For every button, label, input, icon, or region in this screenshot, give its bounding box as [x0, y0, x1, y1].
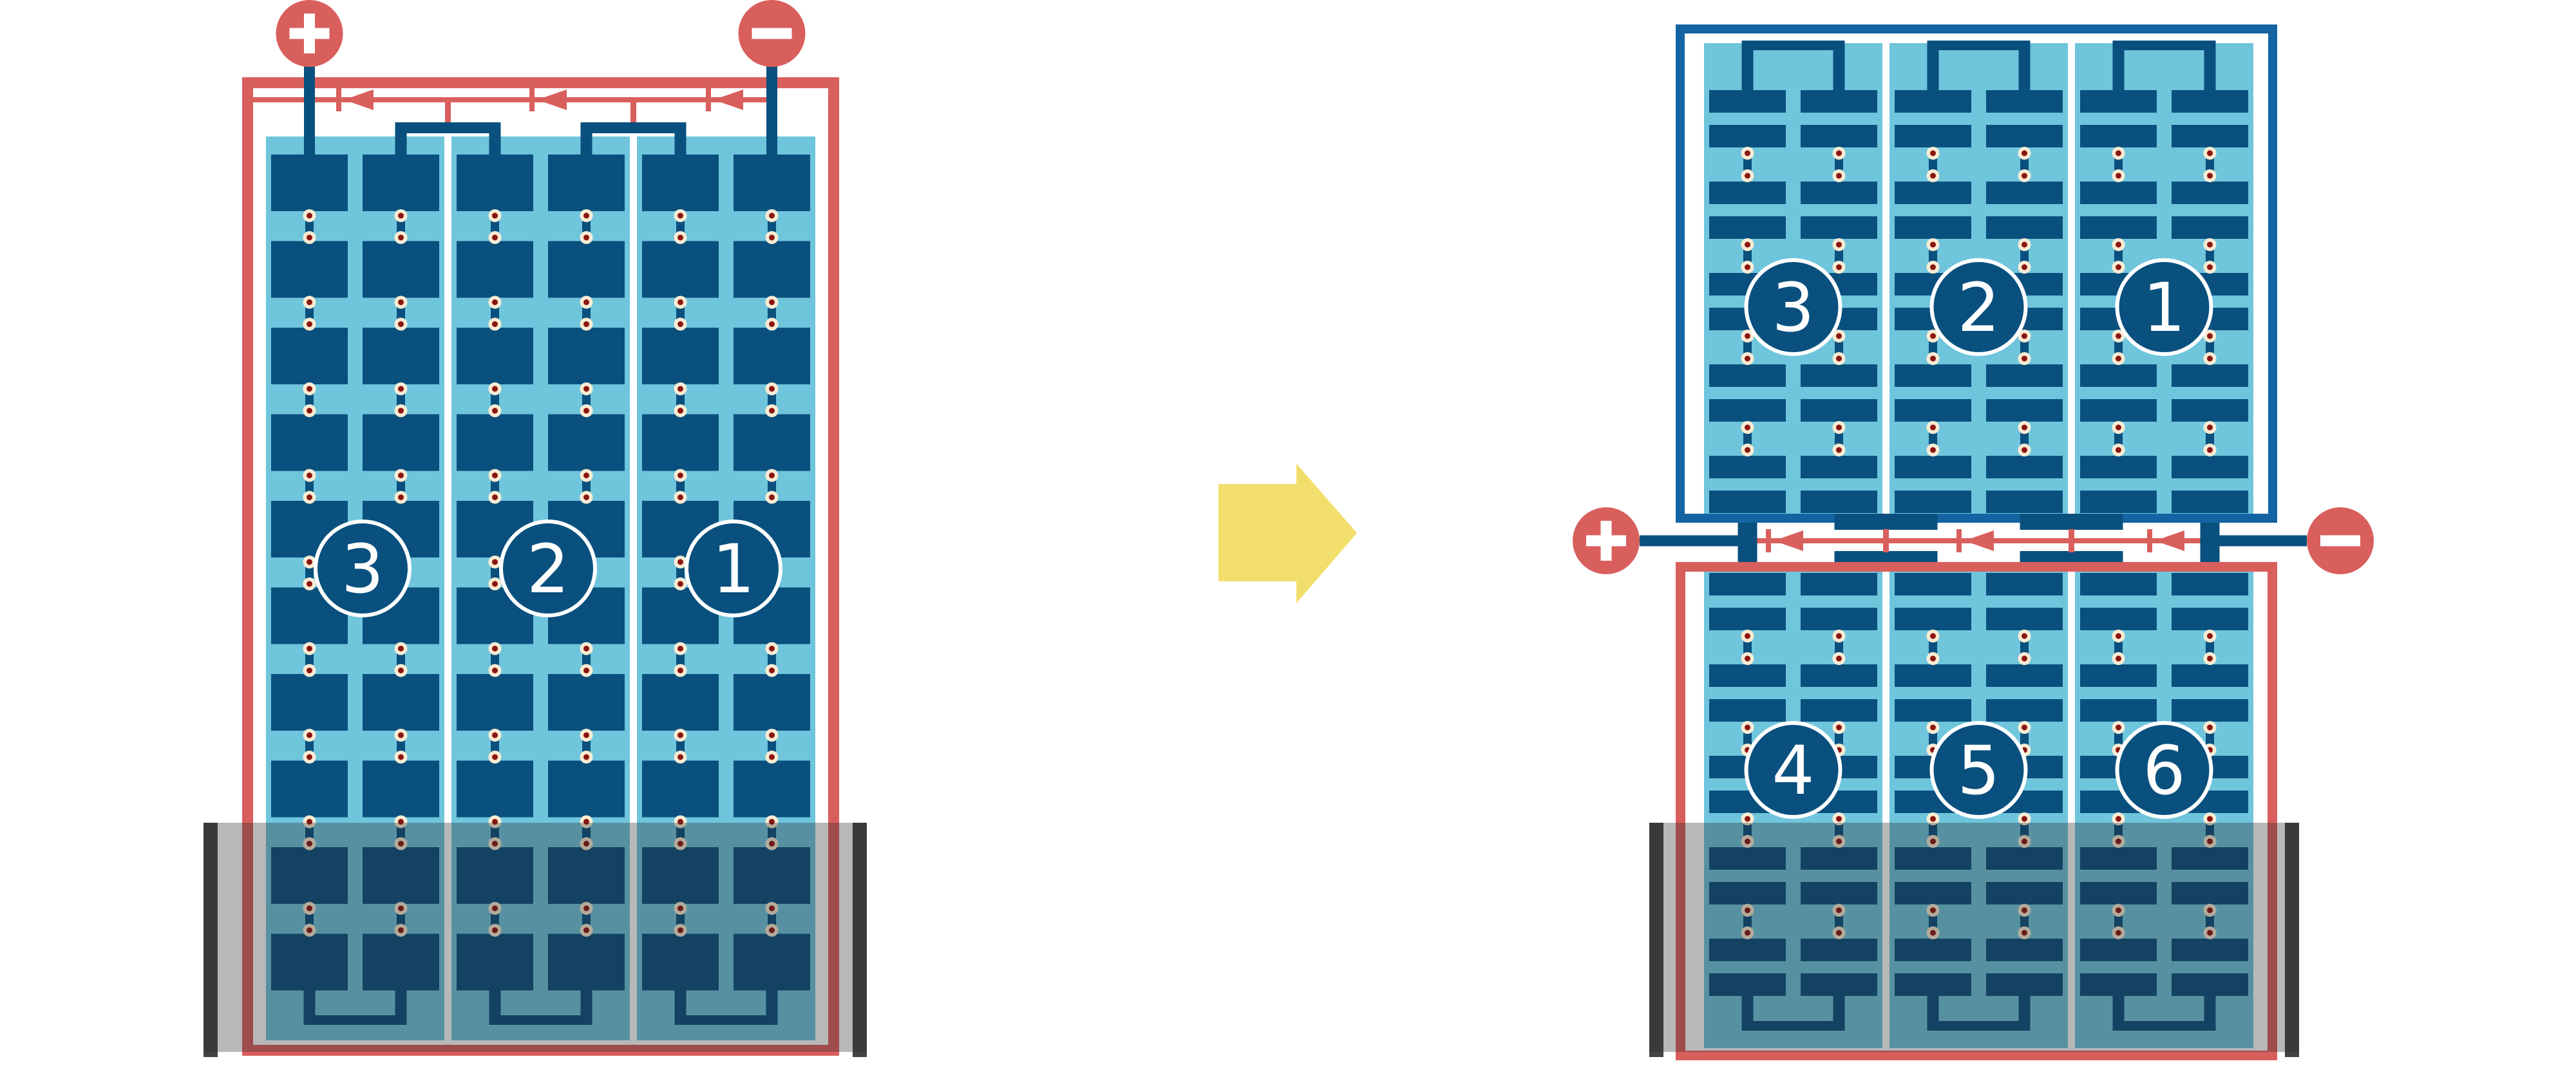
solder-dot-core	[1836, 425, 1842, 431]
solar-cell	[2172, 216, 2248, 239]
solar-cell	[1986, 573, 2063, 595]
solder-dot-core	[1836, 242, 1842, 248]
terminal-sign-bar	[304, 14, 315, 53]
solar-cell	[1895, 456, 1971, 478]
solder-dot-core	[2022, 356, 2027, 362]
solder-dot-core	[2116, 656, 2121, 662]
bus-tab	[2020, 514, 2123, 530]
solar-cell	[1801, 699, 1877, 722]
solder-dot-core	[492, 733, 498, 738]
solder-dot-core	[1745, 242, 1750, 248]
water-overlay	[204, 823, 867, 1052]
solder-dot-core	[2116, 633, 2121, 639]
solar-cell	[2172, 125, 2248, 147]
solder-dot-core	[1836, 173, 1842, 179]
solar-cell	[1986, 664, 2063, 687]
solder-dot-core	[1745, 425, 1750, 431]
solder-dot-core	[583, 754, 589, 760]
solar-cell	[363, 241, 439, 298]
solder-dot-core	[2207, 173, 2213, 179]
solar-cell	[1895, 90, 1971, 113]
diode-triangle	[344, 89, 374, 110]
bypass-diode-bus	[253, 97, 772, 102]
solder-dot-core	[2022, 173, 2027, 179]
after-top-panel: 321	[1680, 29, 2273, 530]
solar-cell	[1709, 216, 1786, 239]
solder-dot-core	[1930, 333, 1936, 339]
solar-cell	[1895, 182, 1971, 204]
solder-dot-core	[1745, 633, 1750, 639]
solar-cell	[2080, 699, 2157, 722]
solder-dot-core	[2022, 242, 2027, 248]
solder-dot-core	[307, 321, 312, 327]
solar-cell	[1709, 364, 1786, 387]
solder-dot-core	[398, 754, 404, 760]
solar-cell	[1986, 182, 2063, 204]
diode-triangle	[2155, 530, 2184, 551]
solder-dot-core	[398, 235, 404, 241]
solar-cell	[548, 328, 625, 384]
solar-cell	[2080, 456, 2157, 478]
solder-dot-core	[677, 235, 683, 241]
solder-dot-core	[307, 213, 312, 219]
flood-reconfiguration-diagram: 321321456	[0, 0, 2576, 1068]
diode-cathode-bar	[2147, 529, 2152, 552]
solder-dot-core	[2207, 151, 2213, 156]
solar-cell	[642, 761, 719, 818]
solder-dot-core	[677, 668, 683, 673]
terminal-stub	[2209, 536, 2307, 547]
solar-cell	[1709, 573, 1786, 595]
bus-stub	[2069, 529, 2074, 552]
solder-dot-core	[677, 559, 683, 565]
solder-dot-core	[2207, 816, 2213, 822]
solar-cell	[1986, 364, 2063, 387]
solder-dot-core	[1930, 633, 1936, 639]
solder-dot-core	[1745, 816, 1750, 822]
solar-cell	[1709, 664, 1786, 687]
solder-dot-core	[2022, 633, 2027, 639]
diode-cathode-bar	[336, 88, 341, 111]
plus-terminal-icon	[1573, 507, 1640, 574]
bus-stub	[445, 100, 451, 124]
solar-cell	[548, 761, 625, 818]
solder-dot-core	[398, 299, 404, 305]
solder-dot-core	[2022, 265, 2027, 270]
solder-dot-core	[583, 408, 589, 414]
solder-dot-core	[1930, 242, 1936, 248]
solder-dot-core	[1930, 816, 1936, 822]
solder-dot-core	[1930, 356, 1936, 362]
before-panel: 321	[204, 0, 867, 1057]
bus-tab	[1835, 551, 1938, 562]
solder-dot-core	[2207, 725, 2213, 731]
solder-dot-core	[2207, 656, 2213, 662]
solar-cell	[1986, 216, 2063, 239]
solder-dot-core	[769, 299, 775, 305]
solder-dot-core	[1930, 447, 1936, 453]
solar-cell	[2080, 125, 2157, 147]
string-number-label: 3	[341, 530, 384, 608]
solar-cell	[1801, 491, 1877, 513]
solder-dot-core	[769, 408, 775, 414]
solder-dot-core	[1745, 656, 1750, 662]
solder-dot-core	[677, 646, 683, 651]
solder-dot-core	[2116, 151, 2121, 156]
solder-dot-core	[1930, 265, 1936, 270]
diode-triangle	[1774, 530, 1803, 551]
solder-dot-core	[2022, 425, 2027, 431]
diode-triangle	[1964, 530, 1994, 551]
terminal-sign-bar	[2320, 536, 2360, 547]
solder-dot-core	[769, 235, 775, 241]
solar-cell	[1986, 125, 2063, 147]
solar-cell	[457, 415, 533, 471]
solar-cell	[2172, 364, 2248, 387]
solder-dot-core	[492, 494, 498, 500]
solar-cell	[1709, 90, 1786, 113]
solder-dot-core	[677, 321, 683, 327]
solder-dot-core	[583, 213, 589, 219]
solder-dot-core	[307, 646, 312, 651]
string-number-badge: 2	[1932, 260, 2026, 354]
solar-cell	[271, 415, 348, 471]
solder-dot-core	[769, 494, 775, 500]
solar-cell	[271, 328, 348, 384]
solder-dot-core	[2116, 265, 2121, 270]
string-number-label: 4	[1772, 731, 1814, 810]
terminal-post	[304, 64, 315, 174]
diode-triangle	[714, 89, 743, 110]
solar-cell	[1801, 608, 1877, 630]
solar-cell	[1895, 573, 1971, 595]
solar-cell	[1801, 90, 1877, 113]
solar-cell	[1895, 125, 1971, 147]
solder-dot-core	[398, 213, 404, 219]
solder-dot-core	[2207, 333, 2213, 339]
solder-dot-core	[1836, 656, 1842, 662]
solar-cell	[457, 674, 533, 731]
solar-cell	[548, 241, 625, 298]
solder-dot-core	[677, 473, 683, 478]
solar-cell	[2080, 573, 2157, 595]
solder-dot-core	[583, 473, 589, 478]
solder-dot-core	[2022, 725, 2027, 731]
solar-cell	[1895, 364, 1971, 387]
string-number-label: 1	[2143, 268, 2185, 347]
solder-dot-core	[769, 733, 775, 738]
solar-cell	[363, 155, 439, 211]
solder-dot-core	[492, 473, 498, 478]
solar-cell	[1801, 399, 1877, 422]
solder-dot-core	[492, 646, 498, 651]
solder-dot-core	[677, 581, 683, 587]
solar-cell	[1895, 664, 1971, 687]
solder-dot-core	[492, 408, 498, 414]
solar-cell	[734, 241, 810, 298]
solder-dot-core	[1930, 725, 1936, 731]
solder-dot-core	[1745, 447, 1750, 453]
solder-dot-core	[307, 754, 312, 760]
solar-cell	[2172, 573, 2248, 595]
solar-cell	[642, 415, 719, 471]
string-number-badge: 5	[1932, 723, 2026, 817]
diagram-canvas: 321321456	[0, 0, 2576, 1068]
string-number-badge: 4	[1747, 723, 1841, 817]
solder-dot-core	[677, 408, 683, 414]
solar-cell	[1709, 699, 1786, 722]
solder-dot-core	[677, 213, 683, 219]
solder-dot-core	[492, 559, 498, 565]
solder-dot-core	[492, 235, 498, 241]
solar-cell	[1986, 90, 2063, 113]
solar-cell	[457, 761, 533, 818]
solder-dot-core	[307, 299, 312, 305]
string-number-label: 2	[527, 530, 569, 608]
solder-dot-core	[1836, 356, 1842, 362]
solder-dot-core	[1745, 265, 1750, 270]
water-overlay	[1649, 823, 2299, 1052]
solder-dot-core	[1836, 151, 1842, 156]
flow-arrow-icon	[1218, 464, 1357, 603]
string-number-badge: 3	[316, 521, 410, 615]
solder-dot-core	[307, 386, 312, 392]
minus-terminal-icon	[2307, 507, 2374, 574]
solder-dot-core	[2116, 356, 2121, 362]
solar-cell	[548, 674, 625, 731]
solder-dot-core	[2116, 242, 2121, 248]
solder-dot-core	[1745, 725, 1750, 731]
solar-cell	[2080, 608, 2157, 630]
solar-cell	[1709, 491, 1786, 513]
solder-dot-core	[2022, 656, 2027, 662]
solder-dot-core	[2022, 816, 2027, 822]
solar-cell	[271, 674, 348, 731]
solder-dot-core	[398, 408, 404, 414]
solar-cell	[457, 241, 533, 298]
solar-cell	[548, 415, 625, 471]
plus-terminal-icon	[276, 0, 343, 67]
solder-dot-core	[583, 646, 589, 651]
bus-tab	[2020, 551, 2123, 562]
solder-dot-core	[492, 386, 498, 392]
solder-dot-core	[2207, 425, 2213, 431]
flood-water	[1649, 823, 2299, 1057]
solder-dot-core	[307, 408, 312, 414]
terminal-post	[766, 64, 777, 174]
solar-cell	[457, 155, 533, 211]
solar-cell	[2080, 216, 2157, 239]
solder-dot-core	[1930, 173, 1936, 179]
solder-dot-core	[1836, 447, 1842, 453]
solar-cell	[2172, 182, 2248, 204]
solder-dot-core	[2116, 816, 2121, 822]
solder-dot-core	[1745, 151, 1750, 156]
solar-cell	[1986, 456, 2063, 478]
solar-cell	[2080, 182, 2157, 204]
solar-cell	[1709, 608, 1786, 630]
solar-cell	[642, 674, 719, 731]
solder-dot-core	[492, 299, 498, 305]
solar-cell	[1801, 182, 1877, 204]
solder-dot-core	[677, 386, 683, 392]
solder-dot-core	[1930, 151, 1936, 156]
terminal-sign-bar	[752, 28, 792, 39]
solar-cell	[734, 415, 810, 471]
solar-cell	[2172, 90, 2248, 113]
solder-dot-core	[398, 321, 404, 327]
solar-cell	[1986, 699, 2063, 722]
solder-dot-core	[2207, 633, 2213, 639]
solder-dot-core	[307, 235, 312, 241]
terminal-stub	[1640, 536, 1749, 547]
solder-dot-core	[769, 321, 775, 327]
solder-dot-core	[307, 494, 312, 500]
string-number-badge: 6	[2117, 723, 2211, 817]
string-number-label: 3	[1772, 268, 1814, 347]
solar-cell	[734, 674, 810, 731]
solar-cell	[1895, 699, 1971, 722]
solder-dot-core	[1836, 816, 1842, 822]
solder-dot-core	[2116, 425, 2121, 431]
solder-dot-core	[1836, 265, 1842, 270]
solder-dot-core	[677, 494, 683, 500]
solar-cell	[1801, 216, 1877, 239]
solder-dot-core	[769, 646, 775, 651]
solder-dot-core	[2022, 333, 2027, 339]
solder-dot-core	[307, 668, 312, 673]
solar-cell	[271, 241, 348, 298]
flood-water	[204, 823, 867, 1057]
solar-cell	[1709, 125, 1786, 147]
solar-cell	[457, 328, 533, 384]
solder-dot-core	[677, 733, 683, 738]
string-number-badge: 2	[501, 521, 595, 615]
solder-dot-core	[398, 668, 404, 673]
solder-dot-core	[398, 386, 404, 392]
solar-cell	[1986, 608, 2063, 630]
solder-dot-core	[492, 213, 498, 219]
solder-dot-core	[1836, 333, 1842, 339]
solder-dot-core	[1745, 173, 1750, 179]
solder-dot-core	[769, 213, 775, 219]
solder-dot-core	[398, 733, 404, 738]
solar-cell	[1895, 216, 1971, 239]
solar-cell	[1986, 399, 2063, 422]
string-number-label: 2	[1957, 268, 2000, 347]
solar-cell	[1801, 125, 1877, 147]
solar-cell	[1709, 399, 1786, 422]
terminal-sign-bar	[1601, 521, 1612, 561]
solar-cell	[1801, 456, 1877, 478]
solar-cell	[271, 761, 348, 818]
solder-dot-core	[1930, 425, 1936, 431]
solder-dot-core	[2116, 333, 2121, 339]
solder-dot-core	[2207, 356, 2213, 362]
solder-dot-core	[2116, 173, 2121, 179]
solar-cell	[2080, 399, 2157, 422]
solder-dot-core	[2116, 725, 2121, 731]
solder-dot-core	[2207, 242, 2213, 248]
solder-dot-core	[583, 668, 589, 673]
solder-dot-core	[2207, 265, 2213, 270]
solder-dot-core	[2022, 447, 2027, 453]
diode-triangle	[537, 89, 567, 110]
solder-dot-core	[1836, 725, 1842, 731]
solder-dot-core	[769, 386, 775, 392]
solder-dot-core	[398, 494, 404, 500]
solar-cell	[2080, 664, 2157, 687]
solar-cell	[1801, 573, 1877, 595]
diode-cathode-bar	[1956, 529, 1962, 552]
solder-dot-core	[583, 386, 589, 392]
diode-cathode-bar	[706, 88, 711, 111]
solar-cell	[2172, 664, 2248, 687]
solder-dot-core	[398, 646, 404, 651]
string-number-label: 6	[2143, 731, 2185, 810]
solar-cell	[642, 155, 719, 211]
solder-dot-core	[769, 473, 775, 478]
solar-cell	[1895, 399, 1971, 422]
minus-terminal-icon	[739, 0, 806, 67]
solder-dot-core	[307, 581, 312, 587]
solar-cell	[2172, 608, 2248, 630]
solder-dot-core	[583, 299, 589, 305]
solder-dot-core	[307, 559, 312, 565]
diode-cathode-bar	[1766, 529, 1771, 552]
string-number-label: 1	[712, 530, 755, 608]
solar-cell	[363, 761, 439, 818]
solar-cell	[734, 328, 810, 384]
solder-dot-core	[583, 321, 589, 327]
solder-dot-core	[769, 668, 775, 673]
solar-cell	[642, 328, 719, 384]
solar-cell	[2172, 456, 2248, 478]
solder-dot-core	[1745, 356, 1750, 362]
solder-dot-core	[583, 733, 589, 738]
solar-cell	[1801, 364, 1877, 387]
solder-dot-core	[583, 494, 589, 500]
diode-cathode-bar	[529, 88, 535, 111]
after-assembly: 321456	[1573, 29, 2374, 1057]
solar-cell	[363, 328, 439, 384]
solder-dot-core	[398, 473, 404, 478]
string-number-badge: 3	[1747, 260, 1841, 354]
solder-dot-core	[307, 733, 312, 738]
solar-cell	[548, 155, 625, 211]
solder-dot-core	[1930, 656, 1936, 662]
solder-dot-core	[492, 321, 498, 327]
solder-dot-core	[492, 754, 498, 760]
solar-cell	[363, 674, 439, 731]
bus-stub	[630, 100, 636, 124]
solder-dot-core	[1836, 633, 1842, 639]
solar-cell	[363, 415, 439, 471]
solder-dot-core	[2116, 447, 2121, 453]
solar-cell	[2080, 491, 2157, 513]
solder-dot-core	[2207, 447, 2213, 453]
solder-dot-core	[307, 473, 312, 478]
solar-cell	[1801, 664, 1877, 687]
solar-cell	[1895, 608, 1971, 630]
solar-cell	[1709, 182, 1786, 204]
solar-cell	[1986, 491, 2063, 513]
solar-cell	[2080, 90, 2157, 113]
solder-dot-core	[2022, 151, 2027, 156]
string-number-badge: 1	[2117, 260, 2211, 354]
solar-cell	[642, 241, 719, 298]
solder-dot-core	[492, 668, 498, 673]
